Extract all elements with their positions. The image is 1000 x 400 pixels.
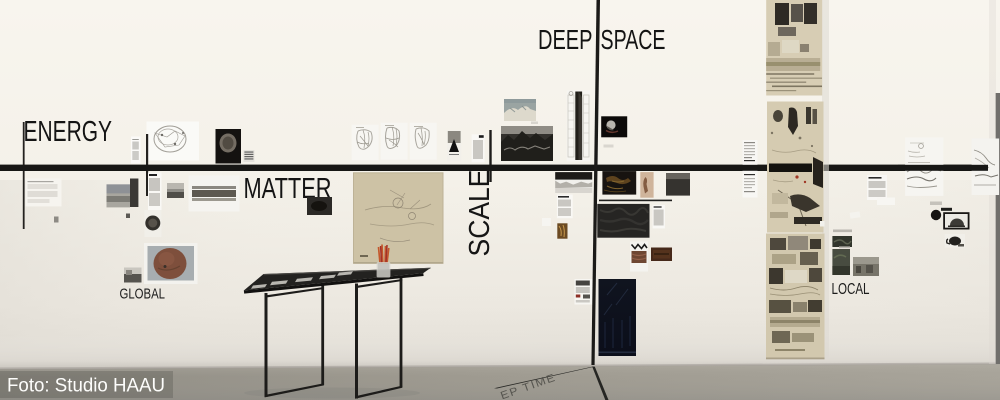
svg-text:LOCAL: LOCAL [832,281,870,298]
svg-text:GLOBAL: GLOBAL [120,286,166,303]
svg-text:Foto: Studio HAAU: Foto: Studio HAAU [7,375,165,397]
svg-text:ENERGY: ENERGY [24,116,113,148]
svg-text:DEEP: DEEP [538,24,593,55]
svg-text:SCALE: SCALE [464,170,496,257]
svg-text:SPACE: SPACE [601,24,666,55]
